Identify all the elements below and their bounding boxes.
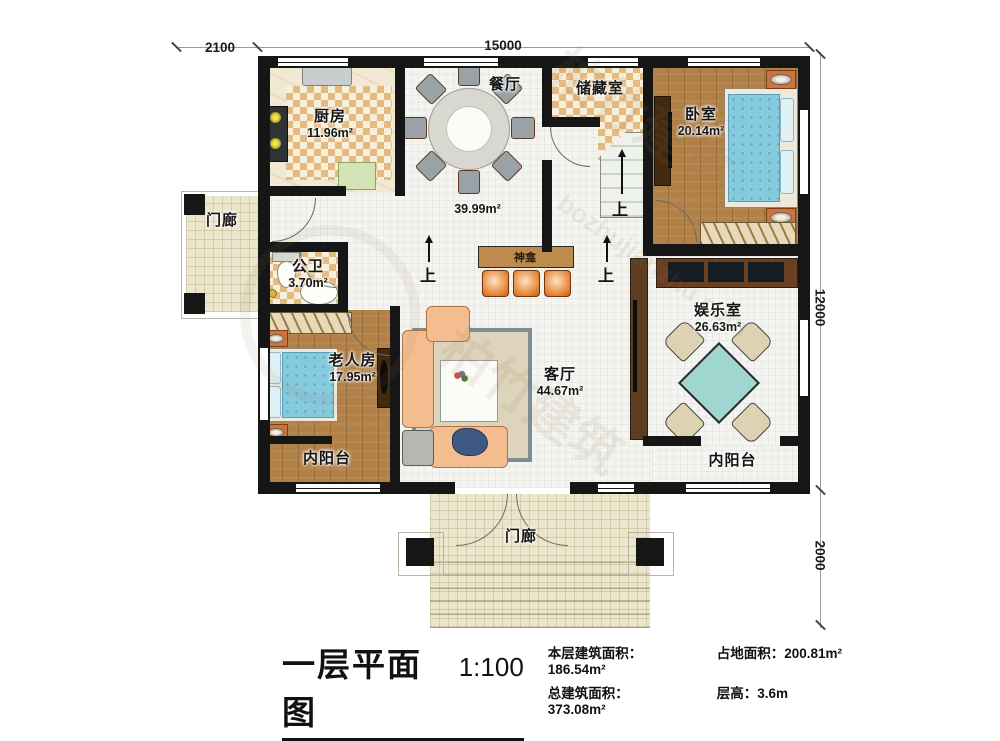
porch-bottom-pillar-left bbox=[406, 538, 434, 566]
step-up-arrow-left bbox=[428, 238, 430, 262]
wall-kitchen-bottom bbox=[262, 186, 346, 196]
porch-bottom-pillar-right bbox=[636, 538, 664, 566]
bedroom-area: 20.14m² bbox=[655, 124, 747, 139]
elder-name: 老人房 bbox=[295, 352, 410, 370]
bath-name: 公卫 bbox=[268, 258, 348, 276]
label-game: 娱乐室 26.63m² bbox=[663, 302, 773, 335]
label-balcony-right: 内阳台 bbox=[685, 452, 780, 470]
wall-game-bottom-left bbox=[643, 436, 701, 446]
kitchen-area: 11.96m² bbox=[280, 126, 380, 141]
footer-title-block: 一层平面图 1:100 bbox=[282, 638, 524, 741]
dim-right-bottom: 2000 bbox=[813, 521, 828, 591]
balcony-right-name: 内阳台 bbox=[685, 452, 780, 470]
bath-area: 3.70m² bbox=[268, 276, 348, 291]
label-balcony-left: 内阳台 bbox=[282, 450, 372, 468]
stat-total-area: 总建筑面积：373.08m² bbox=[548, 682, 683, 717]
game-media-screens bbox=[668, 262, 784, 282]
porch-left-name: 门廊 bbox=[190, 212, 254, 230]
balcony-left-name: 内阳台 bbox=[282, 450, 372, 468]
dim-top-left: 2100 bbox=[192, 40, 248, 55]
living-area: 44.67m² bbox=[510, 384, 610, 399]
porch-left-pillar-bottom bbox=[184, 293, 205, 314]
shrine-name: 神龛 bbox=[514, 252, 536, 264]
window-porch-bottom-side bbox=[598, 482, 634, 494]
wall-kitchen-right bbox=[395, 56, 405, 196]
label-living: 客厅 44.67m² bbox=[510, 366, 610, 399]
footer-stats: 本层建筑面积：186.54m² 占地面积：200.81m² 总建筑面积：373.… bbox=[548, 638, 842, 717]
window-bedroom-right bbox=[798, 110, 810, 194]
dining-chair-e bbox=[511, 117, 535, 139]
plan-scale: 1:100 bbox=[459, 652, 524, 683]
dim-right: 12000 bbox=[813, 278, 828, 338]
side-table bbox=[402, 430, 434, 466]
game-name: 娱乐室 bbox=[663, 302, 773, 320]
bedroom-name: 卧室 bbox=[655, 106, 747, 124]
wall-hall-right-lower bbox=[542, 160, 552, 252]
bedroom-nightstand-1 bbox=[766, 70, 796, 89]
dim-top: 15000 bbox=[468, 38, 538, 53]
living-tv bbox=[633, 300, 637, 392]
window-game-right bbox=[798, 320, 810, 396]
hall-area: 39.99m² bbox=[430, 202, 525, 217]
step-up-label-left: 上 bbox=[420, 262, 436, 286]
wall-elder-right bbox=[390, 306, 400, 488]
stat-land-area: 占地面积：200.81m² bbox=[717, 642, 842, 677]
label-dining: 餐厅 bbox=[470, 76, 540, 94]
storage-name: 储藏室 bbox=[558, 80, 642, 98]
floor-plan-sheet: { "watermark": { "brand": "柏竹建筑", "site"… bbox=[0, 0, 1000, 706]
dining-table-top bbox=[446, 106, 492, 152]
window-hall-top bbox=[588, 56, 638, 68]
bedroom-pillow-1 bbox=[780, 98, 794, 142]
label-porch-left: 门廊 bbox=[190, 212, 254, 230]
coffee-table-flowers bbox=[452, 370, 470, 384]
plan-title: 一层平面图 bbox=[282, 638, 443, 734]
shrine-stool-1 bbox=[482, 270, 509, 297]
wall-storage-bottom bbox=[542, 117, 600, 127]
label-bath: 公卫 3.70m² bbox=[268, 258, 348, 291]
elder-area: 17.95m² bbox=[295, 370, 410, 385]
label-elder: 老人房 17.95m² bbox=[295, 352, 410, 385]
person-on-sofa bbox=[452, 428, 488, 456]
wall-game-bottom-right bbox=[780, 436, 810, 446]
step-up-label-right: 上 bbox=[598, 262, 614, 286]
window-bedroom-top bbox=[688, 56, 760, 68]
wall-bedroom-left bbox=[643, 56, 653, 246]
window-elder-left bbox=[258, 348, 270, 420]
game-area: 26.63m² bbox=[663, 320, 773, 335]
wall-bedroom-bottom bbox=[643, 244, 810, 256]
window-dining-top bbox=[424, 56, 498, 68]
living-name: 客厅 bbox=[510, 366, 610, 384]
window-balcony-left-bottom bbox=[296, 482, 380, 494]
dining-name: 餐厅 bbox=[470, 76, 540, 94]
wall-bath-bottom bbox=[262, 304, 348, 312]
label-bedroom: 卧室 20.14m² bbox=[655, 106, 747, 139]
wall-bath-top bbox=[262, 242, 348, 252]
bedroom-pillow-2 bbox=[780, 150, 794, 194]
wall-storage-left bbox=[542, 56, 552, 124]
window-kitchen-top bbox=[278, 56, 348, 68]
shrine-stool-2 bbox=[513, 270, 540, 297]
bedroom-wardrobe bbox=[700, 222, 796, 246]
label-hall-area: 39.99m² bbox=[430, 202, 525, 217]
stairs-up-arrow bbox=[621, 152, 623, 194]
label-shrine: 神龛 bbox=[495, 249, 555, 265]
porch-bottom-steps bbox=[430, 560, 650, 628]
stairs-up-label: 上 bbox=[612, 196, 628, 220]
stat-height: 层高：3.6m bbox=[717, 682, 842, 717]
label-porch-bottom: 门廊 bbox=[486, 528, 556, 546]
label-storage: 储藏室 bbox=[558, 80, 642, 98]
dining-chair-w bbox=[403, 117, 427, 139]
shrine-stool-3 bbox=[544, 270, 571, 297]
window-balcony-right-bottom bbox=[686, 482, 770, 494]
porch-bottom-name: 门廊 bbox=[486, 528, 556, 546]
label-kitchen: 厨房 11.96m² bbox=[280, 108, 380, 141]
dining-chair-s bbox=[458, 170, 480, 194]
kitchen-sink bbox=[302, 66, 352, 86]
kitchen-name: 厨房 bbox=[280, 108, 380, 126]
stat-floor-area: 本层建筑面积：186.54m² bbox=[548, 642, 683, 677]
step-up-arrow-right bbox=[606, 238, 608, 262]
wall-elder-balcony bbox=[262, 436, 332, 444]
sofa-top-seat bbox=[426, 306, 470, 342]
footer: 一层平面图 1:100 本层建筑面积：186.54m² 占地面积：200.81m… bbox=[282, 638, 842, 741]
